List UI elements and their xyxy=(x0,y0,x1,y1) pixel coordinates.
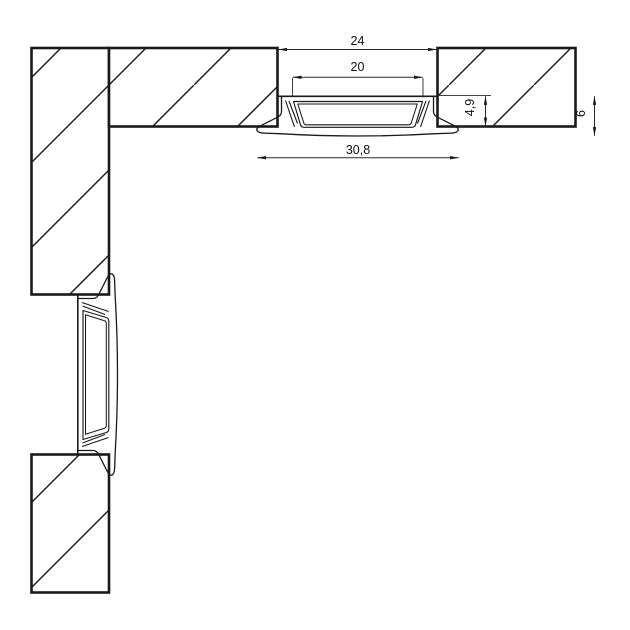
dim-label-flange-width: 30,8 xyxy=(346,143,370,157)
dim-label-profile-height: 6 xyxy=(574,110,588,117)
panel-left-vertical xyxy=(32,48,110,295)
dim-label-groove-width: 24 xyxy=(351,34,365,48)
dim-label-opening-width: 20 xyxy=(351,60,365,74)
drawing-page: 24 20 30,8 4,9 6 xyxy=(0,0,630,630)
panel-top-right xyxy=(438,48,576,127)
technical-drawing-canvas: 24 20 30,8 4,9 6 xyxy=(0,0,630,630)
panel-bottom-left xyxy=(32,455,110,593)
dim-label-recess-depth: 4,9 xyxy=(463,99,477,116)
panel-top-horizontal xyxy=(109,48,278,127)
